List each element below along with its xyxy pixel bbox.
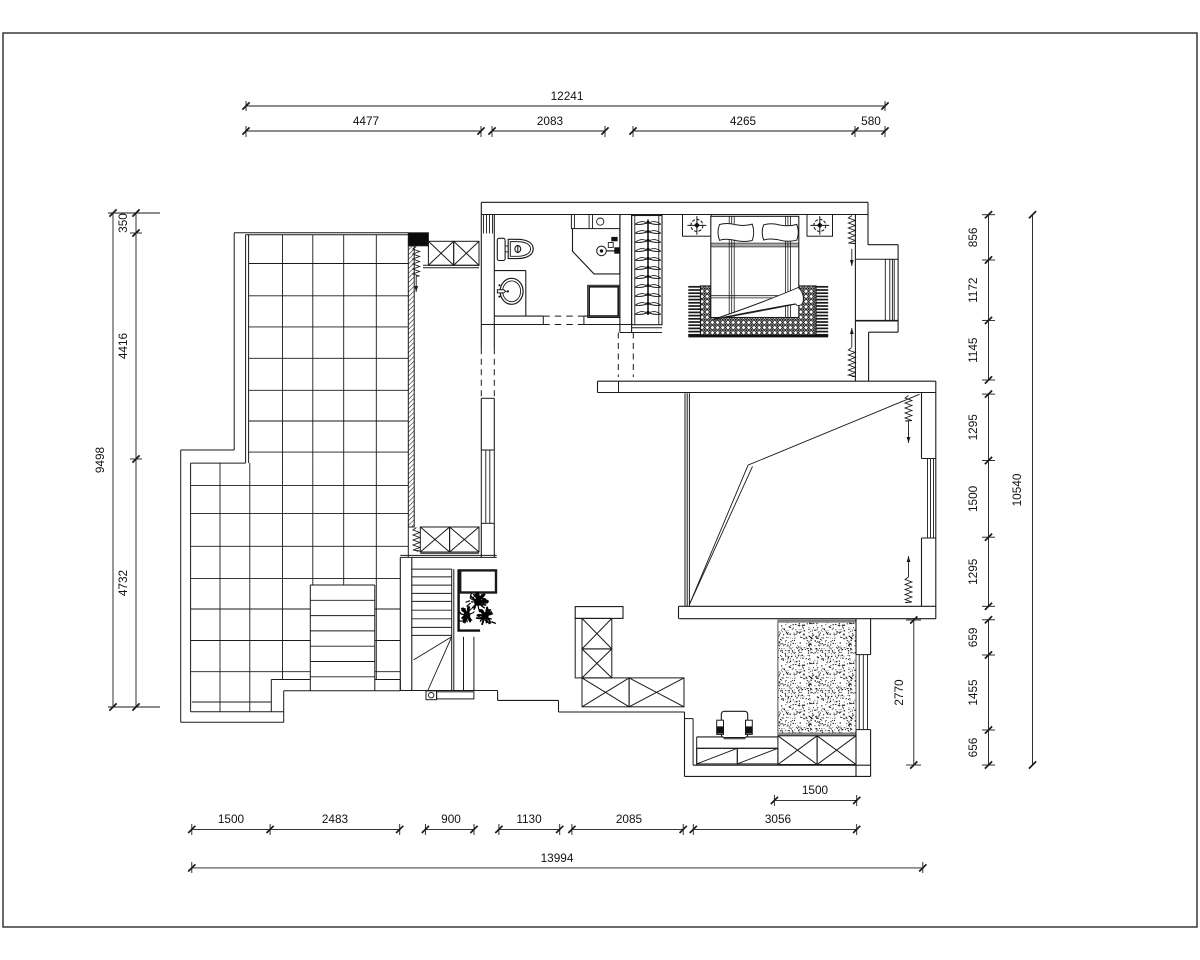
svg-text:1130: 1130 <box>516 812 542 826</box>
svg-text:900: 900 <box>441 812 461 826</box>
svg-text:12241: 12241 <box>551 89 584 103</box>
svg-text:4732: 4732 <box>116 570 130 596</box>
svg-text:1145: 1145 <box>966 337 980 363</box>
svg-text:2083: 2083 <box>537 114 564 128</box>
svg-text:4477: 4477 <box>353 114 379 128</box>
svg-text:2085: 2085 <box>616 812 643 826</box>
svg-text:13994: 13994 <box>541 851 574 865</box>
svg-text:1295: 1295 <box>966 414 980 441</box>
svg-text:1500: 1500 <box>966 485 980 512</box>
svg-text:9498: 9498 <box>93 446 107 473</box>
svg-text:1455: 1455 <box>966 679 980 706</box>
svg-text:350: 350 <box>116 213 130 233</box>
svg-text:1500: 1500 <box>802 783 829 797</box>
svg-text:4265: 4265 <box>730 114 757 128</box>
svg-text:1172: 1172 <box>966 278 980 303</box>
svg-text:2483: 2483 <box>322 812 349 826</box>
svg-text:1295: 1295 <box>966 558 980 585</box>
svg-text:2770: 2770 <box>892 679 906 706</box>
svg-text:580: 580 <box>861 114 881 128</box>
svg-text:656: 656 <box>966 737 980 757</box>
svg-text:4416: 4416 <box>116 332 130 359</box>
svg-text:10540: 10540 <box>1010 473 1024 506</box>
svg-text:1500: 1500 <box>218 812 245 826</box>
svg-text:3056: 3056 <box>765 812 792 826</box>
svg-text:659: 659 <box>966 628 980 648</box>
svg-text:856: 856 <box>966 227 980 247</box>
